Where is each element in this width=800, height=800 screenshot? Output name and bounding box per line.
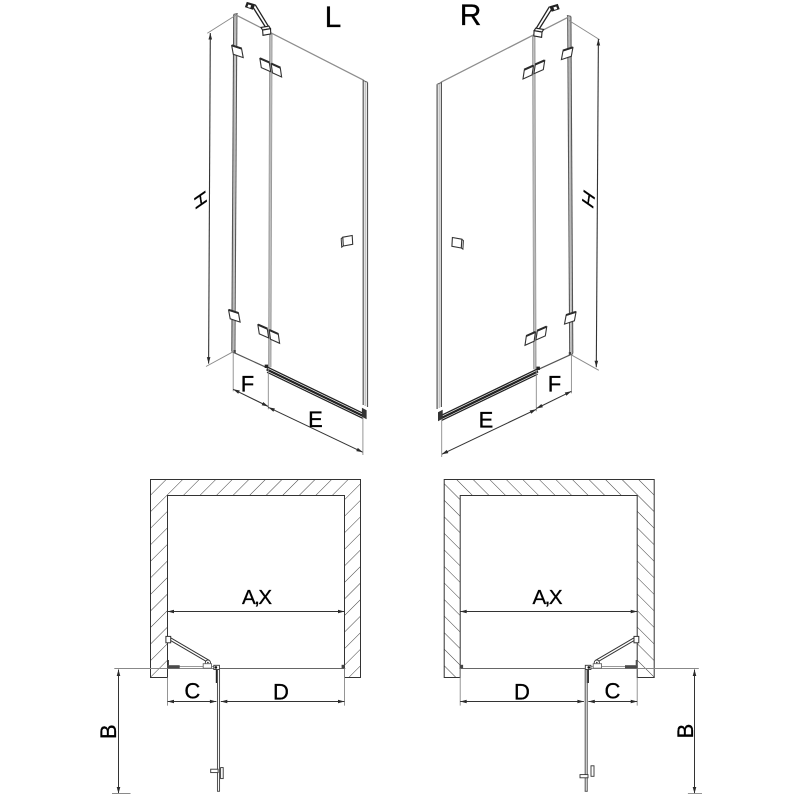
svg-text:B: B <box>96 724 121 739</box>
svg-text:R: R <box>460 0 482 32</box>
svg-text:H: H <box>190 187 210 214</box>
svg-text:A,X: A,X <box>242 586 272 609</box>
svg-text:E: E <box>479 408 494 433</box>
svg-text:C: C <box>184 679 200 704</box>
svg-text:F: F <box>241 372 254 397</box>
svg-text:L: L <box>325 1 342 34</box>
svg-text:H: H <box>578 185 598 212</box>
svg-text:E: E <box>308 407 323 432</box>
svg-text:C: C <box>605 679 621 704</box>
svg-text:F: F <box>548 372 561 397</box>
svg-text:D: D <box>273 680 289 705</box>
svg-text:B: B <box>673 724 698 739</box>
svg-text:A,X: A,X <box>533 586 563 609</box>
svg-text:D: D <box>514 680 530 705</box>
